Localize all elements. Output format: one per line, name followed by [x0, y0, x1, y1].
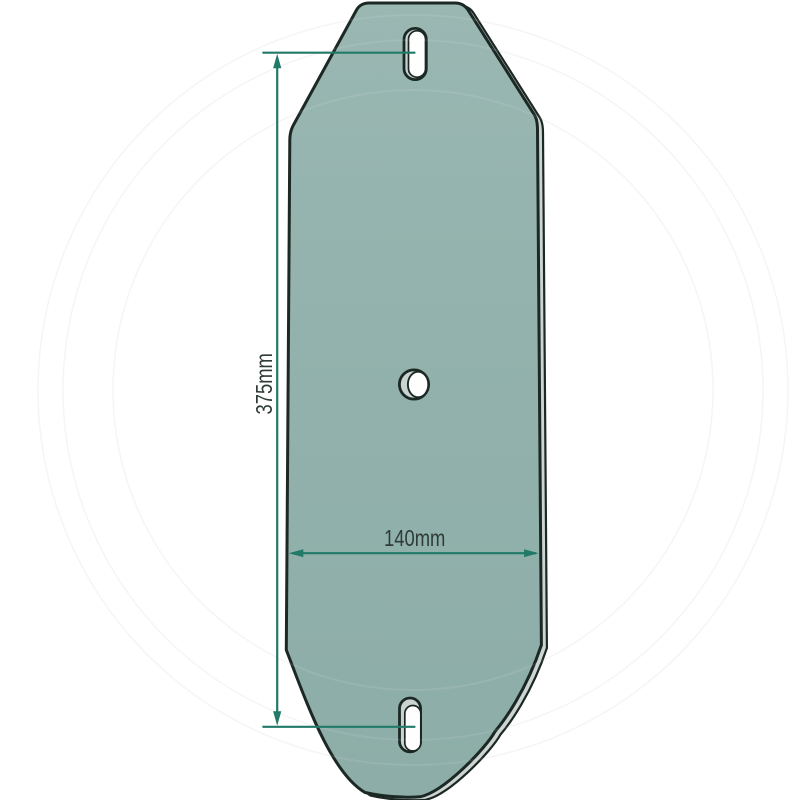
svg-text:375mm: 375mm [252, 353, 277, 414]
svg-text:140mm: 140mm [384, 526, 445, 551]
